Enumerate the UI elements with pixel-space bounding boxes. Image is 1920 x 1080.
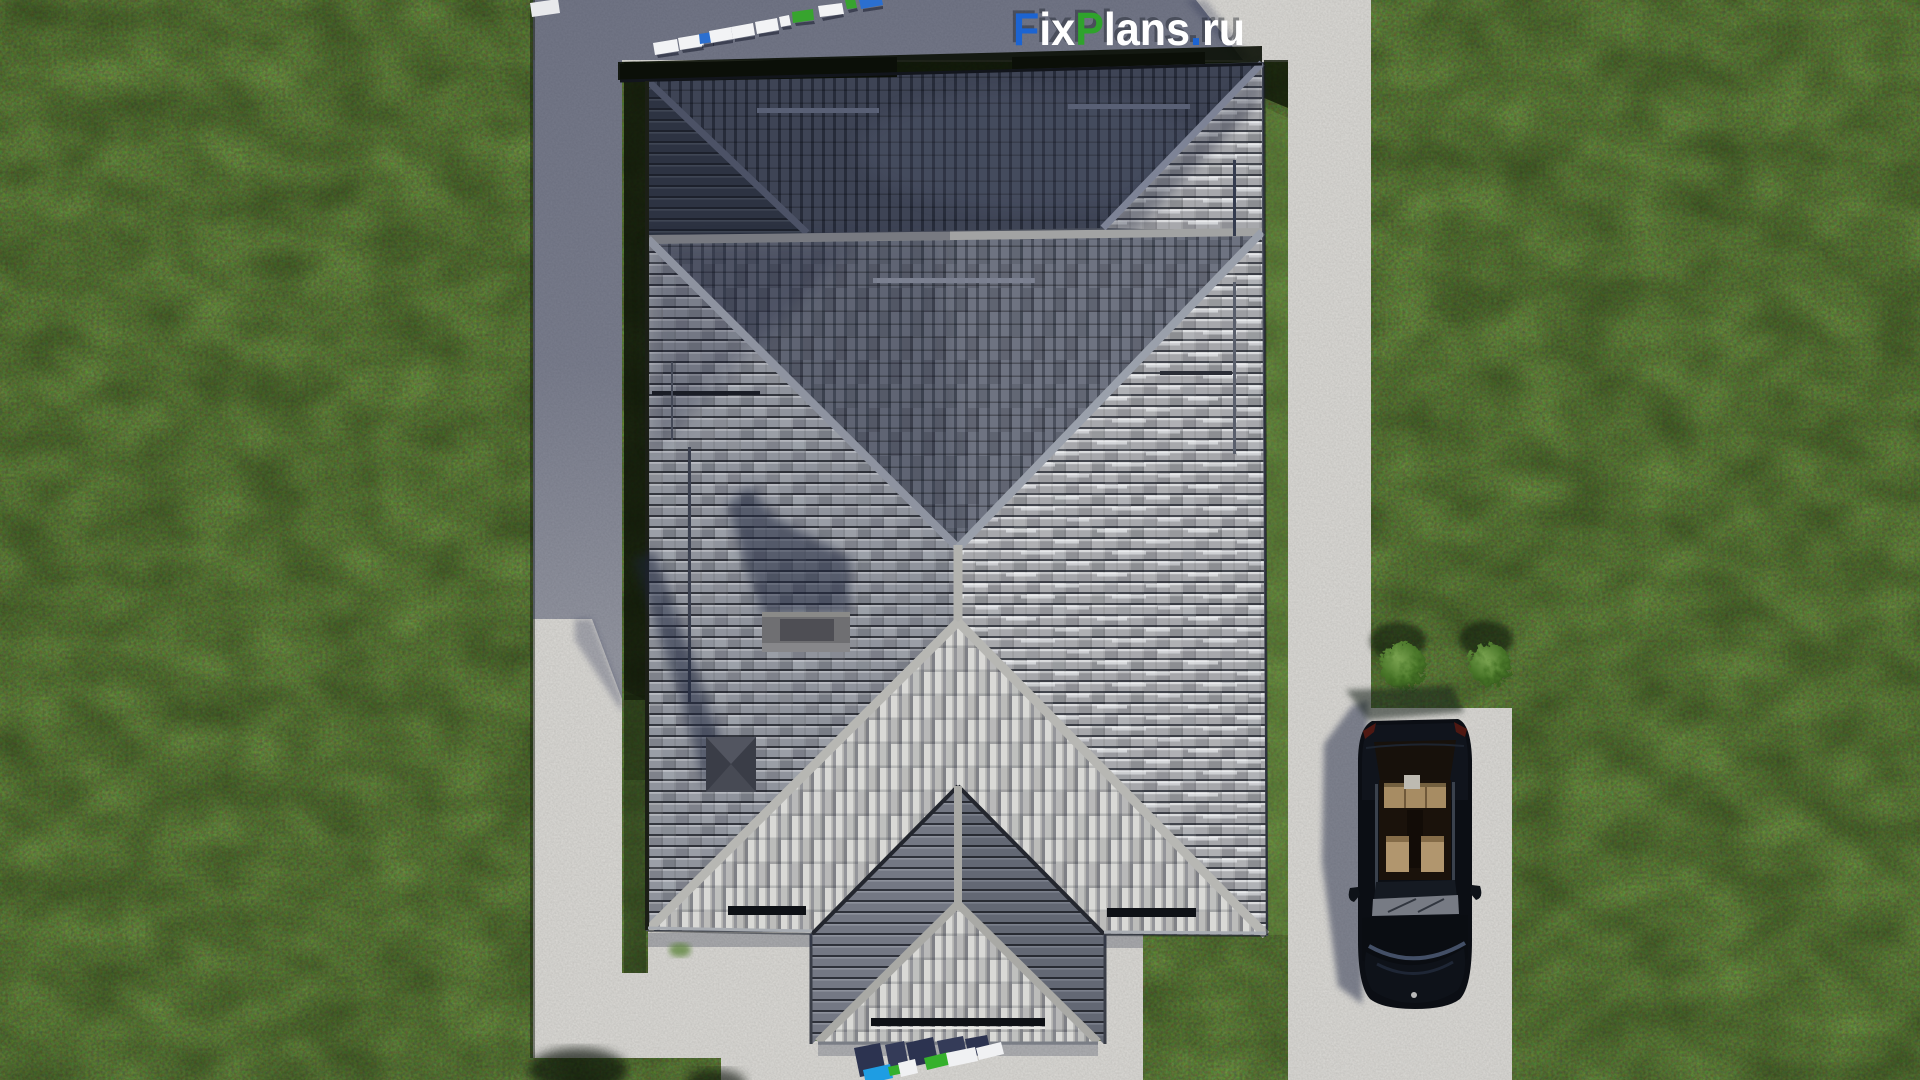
- svg-text:FixPlans.ru: FixPlans.ru: [1013, 3, 1245, 55]
